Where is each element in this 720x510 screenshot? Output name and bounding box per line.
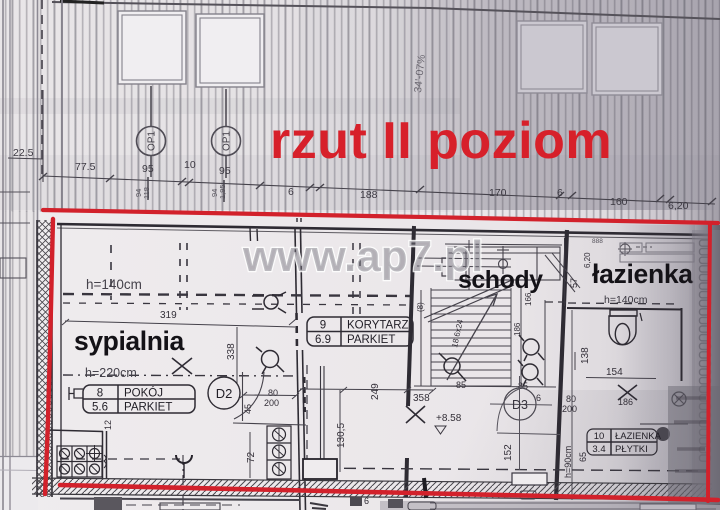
- svg-text:170: 170: [489, 187, 507, 199]
- svg-text:h=140cm: h=140cm: [604, 294, 648, 306]
- svg-text:95: 95: [142, 163, 154, 175]
- svg-text:138: 138: [580, 347, 591, 364]
- svg-text:10: 10: [594, 431, 605, 442]
- svg-text:12: 12: [103, 420, 113, 430]
- svg-text:D2: D2: [216, 386, 233, 401]
- svg-text:80: 80: [566, 394, 576, 404]
- svg-text:77.5: 77.5: [75, 161, 96, 173]
- svg-text:249: 249: [370, 383, 381, 400]
- svg-text:118: 118: [142, 187, 151, 199]
- svg-text:KORYTARZ: KORYTARZ: [347, 320, 409, 332]
- svg-text:6: 6: [557, 187, 563, 199]
- svg-text:h=90cm: h=90cm: [563, 446, 573, 478]
- svg-text:22.5: 22.5: [13, 147, 34, 159]
- svg-text:łazienka: łazienka: [592, 259, 693, 289]
- svg-text:8: 8: [97, 388, 103, 400]
- svg-text:rzut II poziom: rzut II poziom: [270, 112, 612, 170]
- svg-text:152: 152: [503, 444, 514, 461]
- svg-text:D3: D3: [512, 398, 528, 412]
- svg-text:95: 95: [219, 165, 231, 177]
- svg-text:www.ap7.pl: www.ap7.pl: [242, 232, 483, 281]
- svg-text:160: 160: [610, 196, 628, 208]
- svg-text:166: 166: [524, 292, 533, 306]
- svg-text:PARKIET: PARKIET: [347, 334, 395, 346]
- svg-text:6,20: 6,20: [583, 252, 592, 268]
- svg-text:+8.58: +8.58: [436, 413, 462, 424]
- svg-text:POKÓJ: POKÓJ: [124, 387, 163, 400]
- svg-text:6,20: 6,20: [668, 200, 689, 212]
- svg-text:h=140cm: h=140cm: [86, 277, 142, 292]
- svg-text:10: 10: [184, 159, 196, 171]
- svg-text:319: 319: [160, 310, 177, 321]
- svg-text:888: 888: [592, 238, 603, 245]
- svg-text:6: 6: [536, 393, 541, 403]
- svg-text:6.9: 6.9: [315, 334, 331, 346]
- svg-text:130,5: 130,5: [336, 423, 347, 448]
- svg-text:sypialnia: sypialnia: [74, 326, 184, 356]
- svg-text:358: 358: [413, 393, 430, 404]
- svg-text:57: 57: [569, 278, 579, 288]
- svg-text:186: 186: [513, 322, 522, 336]
- svg-text:154: 154: [606, 367, 623, 378]
- svg-text:9: 9: [320, 320, 326, 332]
- svg-text:OP1: OP1: [147, 131, 158, 151]
- svg-text:ŁAZIENKA: ŁAZIENKA: [615, 431, 662, 442]
- svg-text:3.4: 3.4: [592, 444, 605, 455]
- svg-text:65: 65: [578, 452, 588, 462]
- svg-text:1,95: 1,95: [218, 184, 227, 199]
- svg-text:OP1: OP1: [222, 131, 233, 151]
- svg-text:h=220cm: h=220cm: [85, 366, 137, 380]
- svg-text:6: 6: [364, 496, 369, 506]
- svg-text:(8): (8): [416, 302, 425, 312]
- svg-text:200: 200: [264, 398, 279, 408]
- svg-text:6: 6: [288, 186, 294, 198]
- svg-text:80: 80: [268, 388, 278, 398]
- svg-text:338: 338: [226, 343, 237, 360]
- svg-text:72: 72: [246, 451, 257, 463]
- svg-text:PARKIET: PARKIET: [124, 402, 172, 414]
- svg-text:200: 200: [562, 404, 577, 414]
- svg-text:5.6: 5.6: [92, 402, 108, 414]
- svg-text:85: 85: [456, 380, 466, 390]
- svg-text:188: 188: [360, 189, 378, 201]
- svg-text:PŁYTKI: PŁYTKI: [615, 444, 648, 455]
